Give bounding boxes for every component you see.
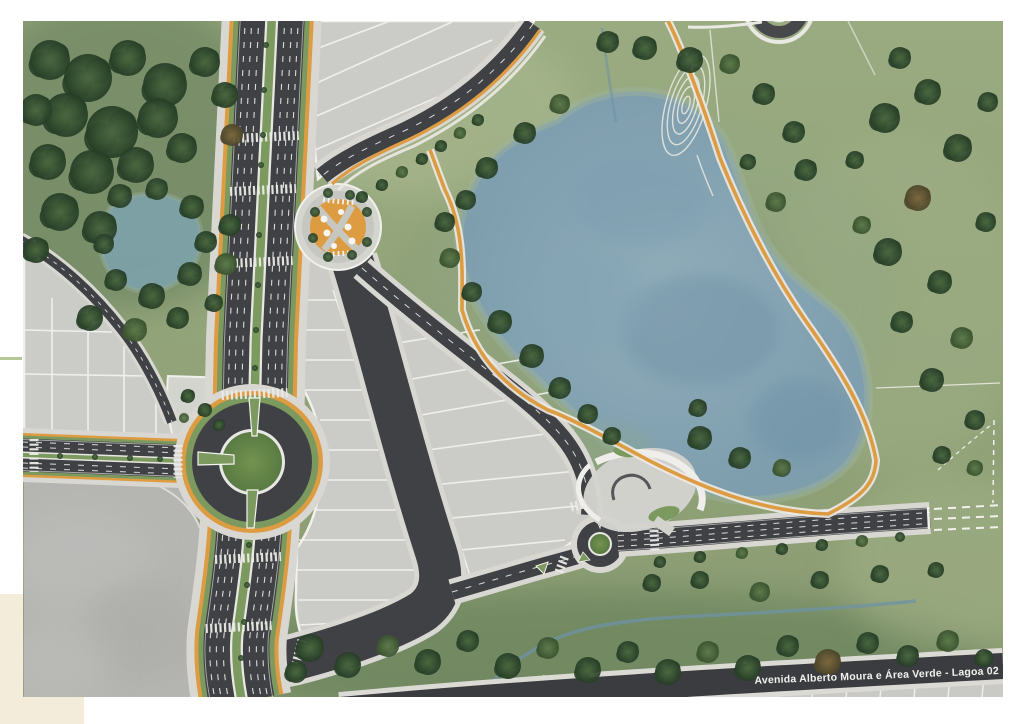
masterplan-map: Avenida Alberto Moura e Área Verde - Lag… (0, 0, 1024, 724)
central-plaza (295, 184, 381, 270)
page-canvas: Avenida Alberto Moura e Área Verde - Lag… (0, 0, 1024, 724)
large-roundabout (174, 384, 330, 540)
avenue-south (205, 521, 282, 702)
avenue-north (223, 14, 304, 410)
